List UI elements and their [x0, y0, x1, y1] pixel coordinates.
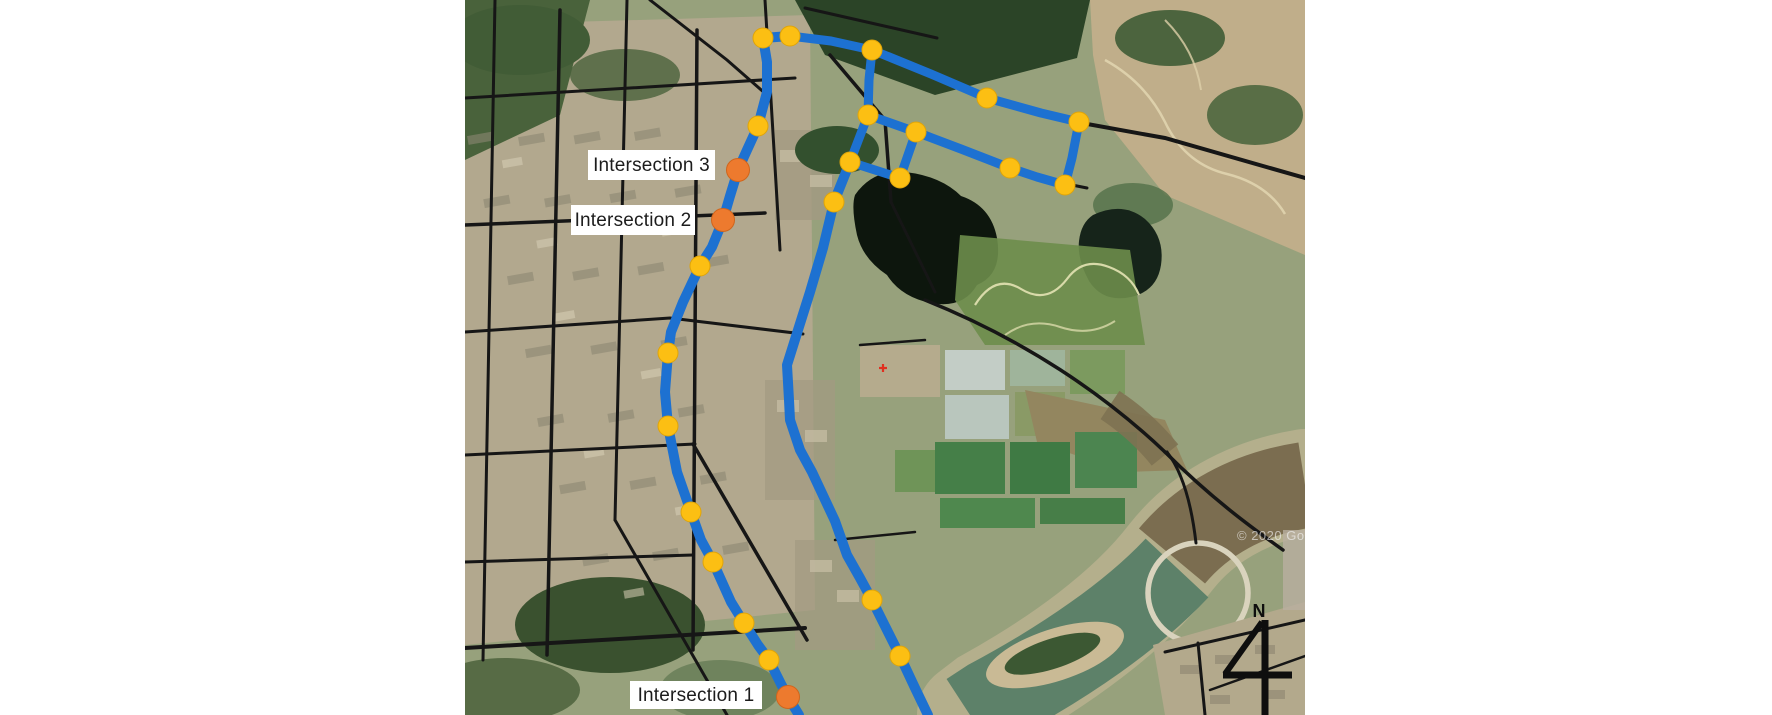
signal-node-marker: [703, 552, 723, 572]
figure-canvas: Intersection 3Intersection 2Intersection…: [0, 0, 1772, 715]
signal-node-marker: [906, 122, 926, 142]
signal-node-marker: [824, 192, 844, 212]
signal-node-marker: [753, 28, 773, 48]
signal-node-marker: [1055, 175, 1075, 195]
signal-node-marker: [1000, 158, 1020, 178]
key-intersection-marker-3: [727, 159, 750, 182]
signal-node-marker: [658, 343, 678, 363]
signal-node-marker: [681, 502, 701, 522]
signal-node-marker: [690, 256, 710, 276]
signal-node-marker: [780, 26, 800, 46]
signal-node-marker: [890, 646, 910, 666]
signal-node-marker: [858, 105, 878, 125]
key-intersection-marker-2: [712, 209, 735, 232]
key-intersection-marker-1: [777, 686, 800, 709]
signal-node-marker: [840, 152, 860, 172]
intersection-label: Intersection 3: [588, 150, 715, 180]
signal-node-marker: [890, 168, 910, 188]
intersection-label: Intersection 1: [630, 681, 762, 709]
signal-node-marker: [1069, 112, 1089, 132]
signal-node-marker: [862, 40, 882, 60]
signal-node-marker: [759, 650, 779, 670]
signal-node-marker: [862, 590, 882, 610]
satellite-basemap: [465, 0, 1305, 715]
satellite-map: Intersection 3Intersection 2Intersection…: [465, 0, 1305, 715]
signal-node-marker: [734, 613, 754, 633]
signal-node-marker: [977, 88, 997, 108]
signal-node-marker: [658, 416, 678, 436]
signal-node-marker: [748, 116, 768, 136]
intersection-label: Intersection 2: [571, 205, 695, 235]
